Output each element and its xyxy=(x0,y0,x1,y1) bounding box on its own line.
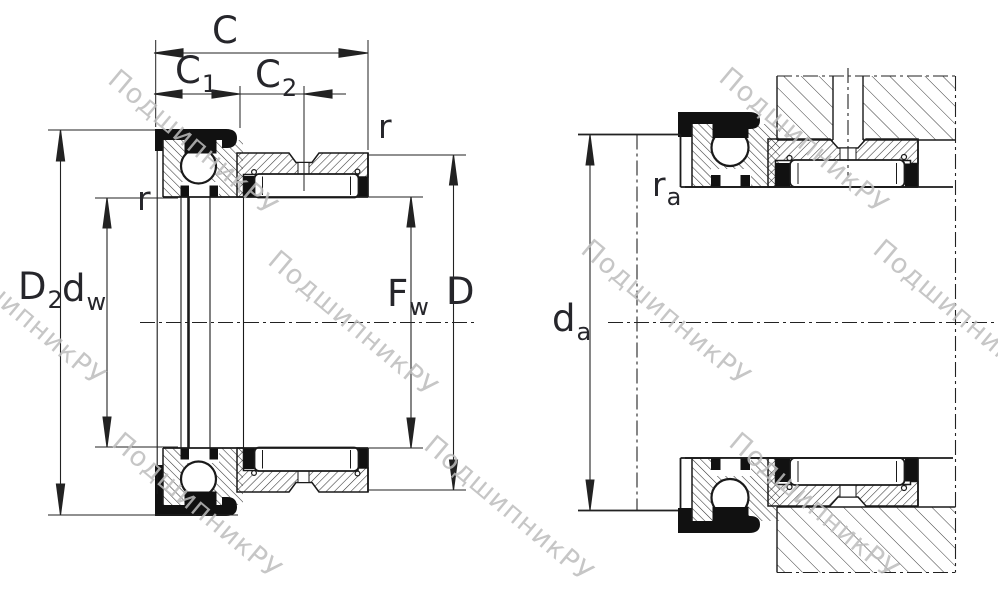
label-dw: dw xyxy=(62,270,106,307)
label-r-inner: r xyxy=(137,182,152,215)
drawing-canvas xyxy=(0,0,998,596)
left-section-view xyxy=(140,129,474,516)
thrust-ball xyxy=(181,462,216,497)
label-Fw: Fw xyxy=(387,275,429,312)
bearing-technical-drawing: C C1 C2 r r D2 dw Fw D da ra ПодшипникРУ… xyxy=(0,0,998,596)
label-D: D xyxy=(446,273,476,310)
needle-rollers xyxy=(255,174,359,198)
label-r-outer: r xyxy=(378,110,393,143)
thrust-ball xyxy=(181,149,216,184)
needle-rollers xyxy=(255,448,359,472)
label-C2: C2 xyxy=(255,56,297,93)
label-C1: C1 xyxy=(175,52,217,89)
right-mounting-view xyxy=(578,68,996,573)
label-D2: D2 xyxy=(18,268,63,305)
label-ra: ra xyxy=(652,168,681,201)
ball-cage xyxy=(185,140,217,154)
label-C: C xyxy=(212,12,239,49)
ball-cage xyxy=(185,492,217,506)
left-section-top-half xyxy=(155,129,368,198)
lubrication-hole xyxy=(298,471,309,483)
label-da: da xyxy=(552,300,591,337)
needle-rollers xyxy=(790,458,905,485)
left-section-top-half xyxy=(155,448,368,517)
ball-cage xyxy=(713,124,749,138)
needle-rollers xyxy=(790,160,905,187)
ball-cage xyxy=(713,507,749,521)
lubrication-hole xyxy=(840,485,856,498)
